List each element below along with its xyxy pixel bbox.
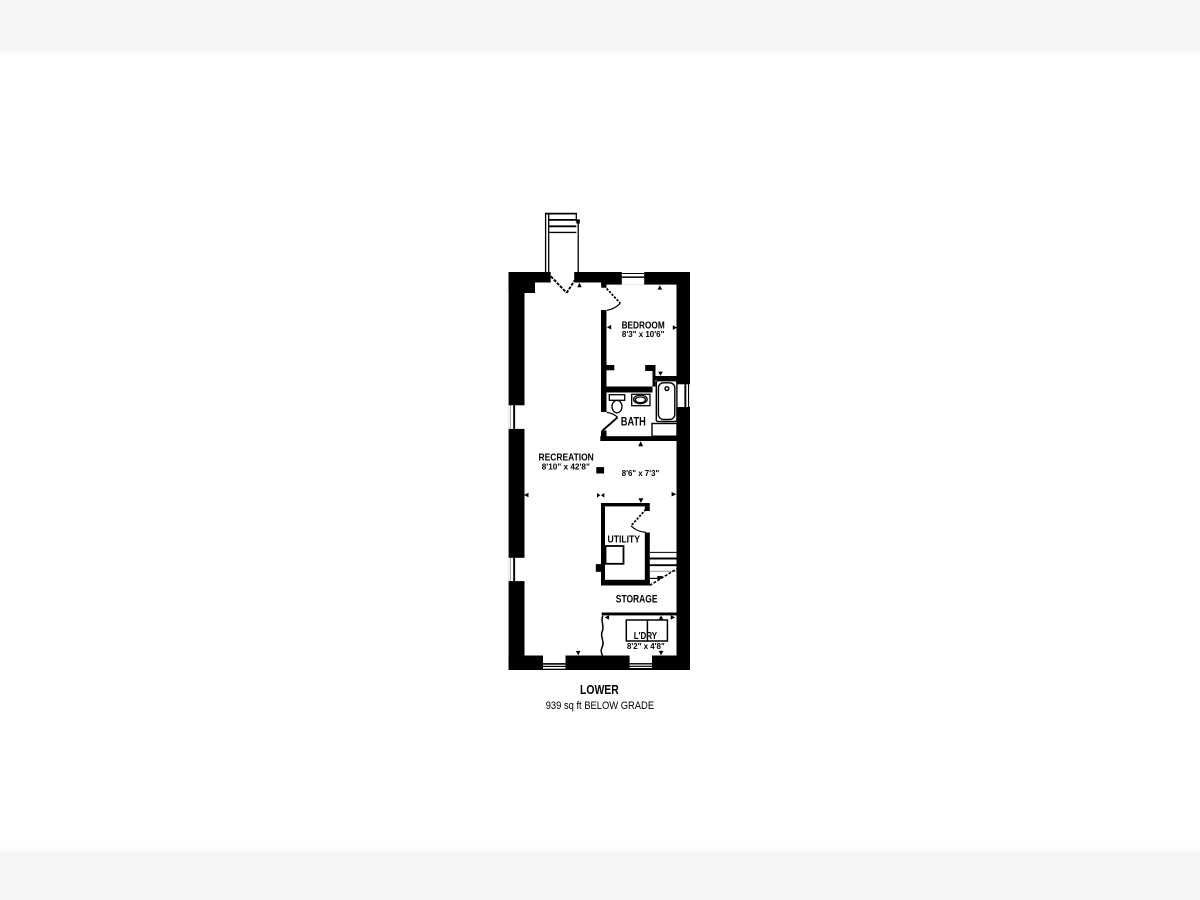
svg-text:939 sq ft BELOW GRADE: 939 sq ft BELOW GRADE	[546, 700, 654, 712]
svg-text:BATH: BATH	[621, 415, 646, 428]
svg-text:UTILITY: UTILITY	[608, 535, 641, 546]
svg-text:8'10" x 42'8": 8'10" x 42'8"	[542, 461, 590, 471]
svg-text:8'3" x 10'6": 8'3" x 10'6"	[622, 329, 665, 339]
svg-text:8'2" x 4'8": 8'2" x 4'8"	[627, 641, 665, 651]
svg-text:LOWER: LOWER	[580, 682, 619, 697]
svg-text:STORAGE: STORAGE	[616, 594, 658, 606]
svg-text:8'6" x 7'3": 8'6" x 7'3"	[622, 468, 660, 478]
